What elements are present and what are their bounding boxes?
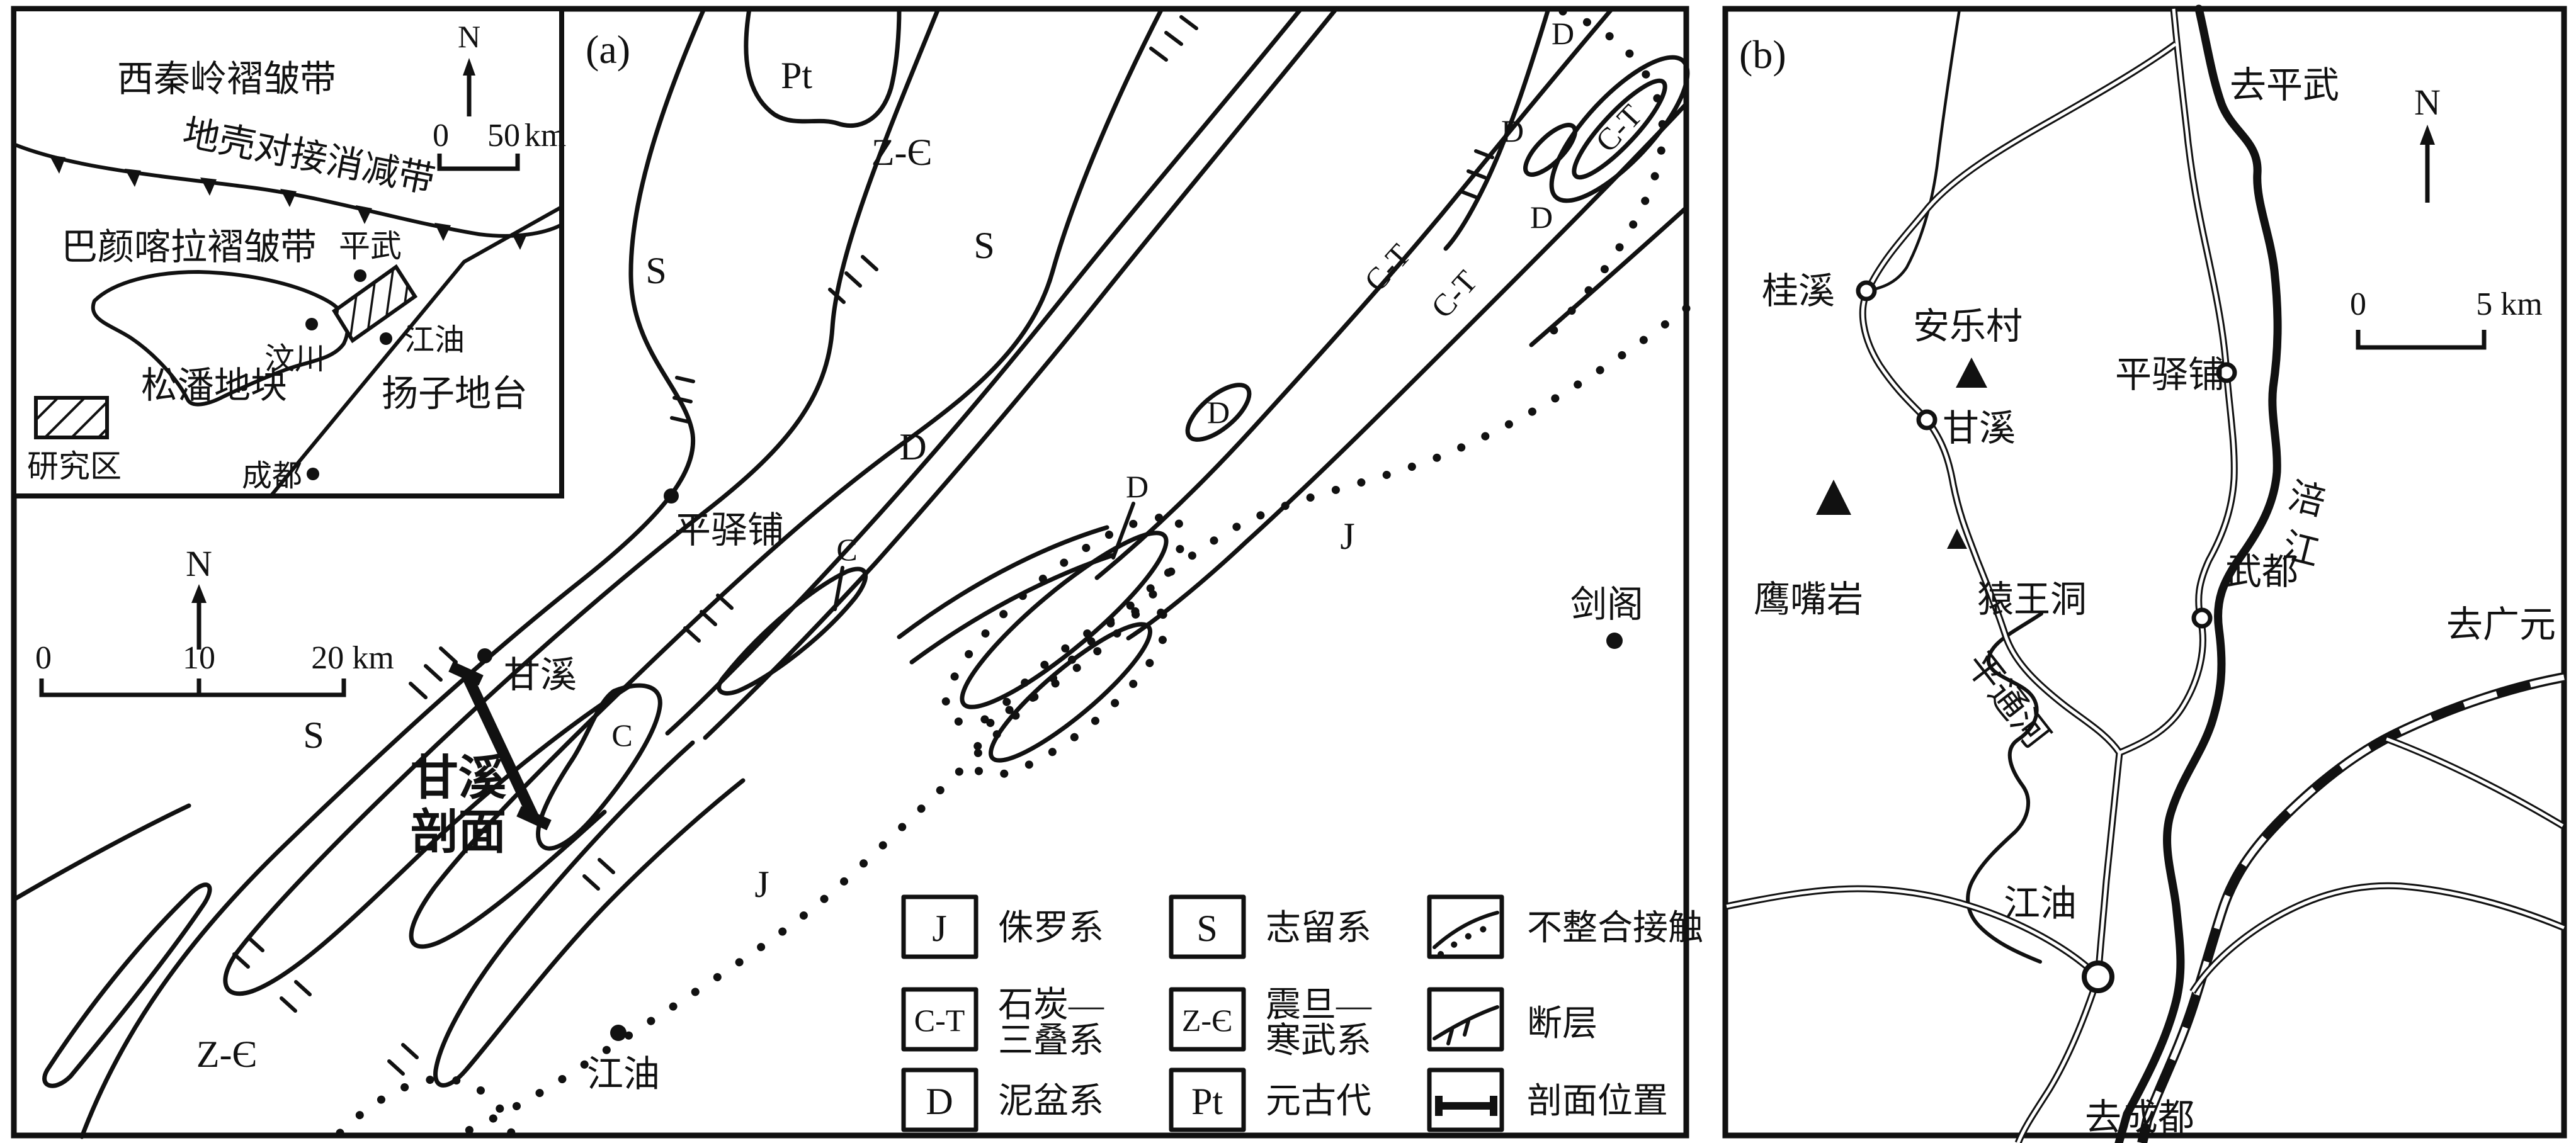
north-label-b: N [2414,82,2441,123]
sw-edge-line [15,806,189,899]
marker-guixi [1858,283,1875,299]
inset-scale-0: 0 [433,118,449,154]
legend-label-ct-2: 三叠系 [998,1022,1104,1061]
inset-label-bayan-har: 巴颜喀拉褶皱带 [61,227,317,267]
panel-b-tag: (b) [1739,32,1786,77]
legend-label-section: 剖面位置 [1527,1082,1668,1121]
inset-study-area-key [36,398,107,437]
town-label-ganxi-a: 甘溪 [504,655,577,695]
town-dot-pingyipu-a [664,488,679,504]
town-label-jiangyou-a: 江油 [587,1054,660,1095]
north-arrowhead-b [2420,125,2435,145]
inset-dot-pingwu [354,269,366,282]
road-to-jiangyou-center [2098,753,2119,977]
c-lens-upper [719,569,866,694]
dotted-lens-1-outline [945,514,1183,726]
band-line-g1 [667,9,1301,733]
unit-label-d-ne2: D [1501,113,1524,149]
inset-label-chengdu: 成都 [242,459,302,493]
unit-label-c-lower: C [611,718,632,753]
inset-label-jiangyou: 江油 [404,324,465,357]
fault-ticks-7 [281,982,310,1011]
legend-label-j: 侏罗系 [998,909,1104,948]
unit-label-zc-sw: Z-Є [196,1033,257,1075]
panel-a-tag: (a) [586,27,630,72]
scale-a-20km: 20 km [311,640,394,676]
panel-b-border [1725,9,2564,1135]
figure-geologic-maps: Pt Z-Є S S S D D D C C C-T C-T C-T D D D… [0,0,2576,1143]
inset-label-west-qinling: 西秦岭褶皱带 [117,59,336,99]
marker-jiangyou-b [2084,963,2112,991]
inset-dot-wenchuan [305,318,318,330]
fault-ticks-2 [1151,17,1196,60]
unit-label-s-mid: S [973,225,994,266]
label-pingtonghe: 平通河 [1958,645,2057,756]
inset-label-study-area: 研究区 [27,449,122,484]
stream-line [1868,9,1960,291]
marker-anlecun-peak [1956,358,1987,388]
marker-ganxi-b [1919,412,1935,428]
label-to-guangyuan: 去广元 [2446,604,2556,645]
label-guixi: 桂溪 [1762,271,1835,312]
unconformity-chain-ne [1548,11,1663,337]
legend-label-pt: 元古代 [1266,1082,1371,1121]
legend-sym-d: D [926,1081,953,1122]
north-label-a: N [186,543,212,584]
band-line-g2 [705,9,1336,738]
fault-ticks-9 [685,595,732,641]
c-lens-lower [538,685,661,848]
unit-label-s-left: S [645,250,666,291]
legend-sym-ct: C-T [914,1003,965,1038]
unit-label-d-main: D [899,426,926,468]
legend-unconformity-line [1434,913,1497,947]
unit-label-s-sw: S [303,714,324,756]
lens-fan-line-1 [899,527,1107,637]
road-network [1727,9,2564,1143]
unit-label-d-ne3: D [1530,200,1553,235]
inset-label-pingwu: 平武 [339,228,402,264]
label-fujiang-2: 江 [2278,526,2324,574]
scale-bar-b [2358,330,2484,347]
scale-b-5km: 5 km [2476,286,2542,322]
town-label-jiange: 剑阁 [1570,584,1643,625]
unit-label-d-lens: D [1207,395,1230,430]
panel-a: Pt Z-Є S S S D D D C C C-T C-T C-T D D D… [14,9,1707,1137]
legend-label-zc-2: 寒武系 [1266,1022,1371,1061]
legend-label-unconformity: 不整合接触 [1527,909,1703,948]
town-dot-jiangyou-a [610,1025,627,1041]
legend-label-zc-1: 震旦— [1266,986,1372,1025]
unit-label-pt: Pt [781,55,812,96]
unit-label-d-ne1: D [1552,16,1574,51]
section-label-line2: 剖面 [411,806,506,859]
legend-unconformity-dots [1441,925,1494,954]
legend: J 侏罗系 S 志留系 不整合接触 C-T 石炭— 三叠系 Z-Є 震旦— 寒武… [904,897,1703,1130]
label-fujiang-1: 涪 [2284,475,2330,524]
legend-label-s: 志留系 [1266,909,1371,948]
marker-yingzuiyan-peak [1816,480,1851,515]
fault-ticks-5 [584,860,613,889]
label-yuanwangdong: 猿王洞 [1977,579,2087,620]
panel-b: 去平武 平驿铺 桂溪 安乐村 甘溪 鹰嘴岩 猿王洞 武都 去广元 江油 去成都 … [1725,9,2564,1143]
unit-label-ct-band-2: C-T [1424,264,1485,325]
unconformity-ring-lens-2 [953,586,1187,799]
legend-label-ct-1: 石炭— [998,986,1104,1025]
town-dot-ganxi-a [477,648,492,663]
town-dot-jiange [1606,633,1623,649]
legend-sym-j: J [932,908,946,949]
label-pingyipu-b: 平驿铺 [2115,354,2225,395]
inset-label-yangtze: 扬子地台 [382,373,528,414]
inset-label-wenchuan: 汶川 [264,342,325,376]
road-east [2193,886,2564,992]
legend-label-fault: 断层 [1527,1005,1597,1044]
inset-scale-km: km [525,118,566,154]
label-to-chengdu: 去成都 [2085,1097,2194,1138]
road-to-guangyuan [2386,739,2563,826]
inset-north-label: N [458,19,480,54]
unit-label-zc-top: Z-Є [871,132,932,173]
pt-outline [746,9,899,126]
section-label-line1: 甘溪 [411,752,507,805]
unit-label-j-south: J [754,864,769,905]
label-anlecun: 安乐村 [1913,306,2023,347]
north-arrowhead-a [191,584,207,603]
legend-label-d: 泥盆系 [998,1082,1104,1121]
legend-section-symbol [1439,1096,1494,1116]
scale-b-0: 0 [2350,286,2366,322]
unconformity-wrap-sw [340,1079,511,1133]
legend-sym-s: S [1196,908,1217,949]
legend-sym-zc: Z-Є [1182,1003,1232,1038]
inset-scale-50: 50 [487,118,520,154]
sw-sliver-band [45,885,210,1086]
label-yingzuiyan: 鹰嘴岩 [1754,579,1863,620]
town-label-pingyipu-a: 平驿铺 [674,510,784,551]
fault-ticks-8 [389,1045,417,1074]
inset-dot-jiangyou [380,332,392,345]
band-line-e1 [1097,9,1612,578]
unit-label-d-mid: D [1126,469,1149,504]
scale-bar-a [42,678,344,695]
inset-dot-chengdu [307,468,319,480]
label-ganxi-b: 甘溪 [1943,408,2016,449]
inset-map: 研究区 西秦岭褶皱带 地壳对接消减带 巴颜喀拉褶皱带 松潘地块 扬子地台 平武 … [14,9,566,496]
unconformity-ring-lens-1 [920,489,1208,751]
marker-wudu [2194,610,2210,626]
scale-a-0: 0 [35,640,52,676]
road-guixi-ganxi [1863,44,2176,753]
label-fujiang-group: 涪 江 [2272,475,2335,574]
fault-ticks-3 [672,378,693,422]
fault-ticks-1 [830,257,877,302]
unit-label-j-east: J [1340,515,1354,557]
label-to-pingwu: 去平武 [2230,65,2339,106]
unit-label-c-upper: C [836,532,857,567]
legend-sym-pt: Pt [1191,1081,1223,1122]
label-jiangyou-b: 江油 [2004,883,2077,924]
unit-label-ct-band-1: C-T [1358,237,1418,298]
scale-a-10: 10 [183,640,215,676]
